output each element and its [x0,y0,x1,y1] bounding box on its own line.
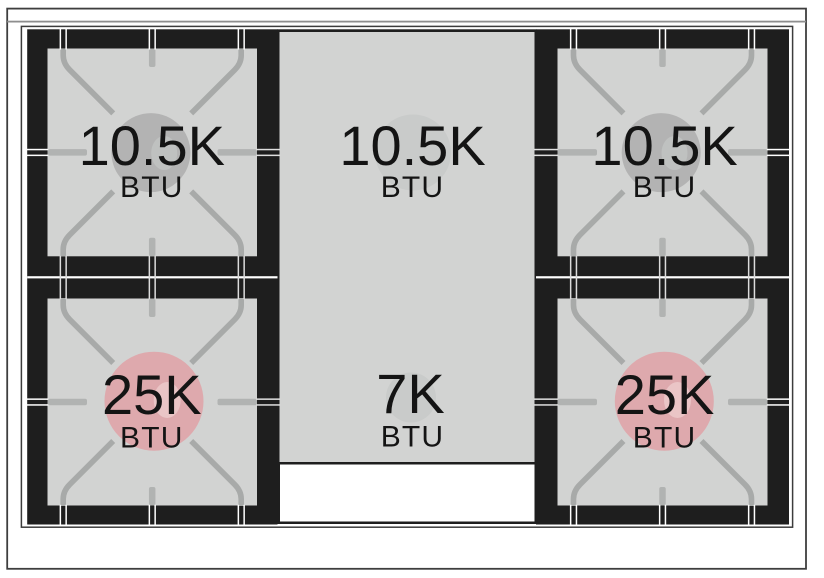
svg-text:10.5K: 10.5K [591,114,737,177]
svg-text:BTU: BTU [633,171,697,204]
svg-text:10.5K: 10.5K [79,114,225,177]
svg-text:BTU: BTU [633,421,697,454]
svg-text:25K: 25K [615,363,715,426]
svg-text:10.5K: 10.5K [339,114,485,177]
svg-text:BTU: BTU [381,420,445,453]
svg-text:BTU: BTU [120,421,184,454]
svg-text:7K: 7K [376,362,445,425]
svg-text:25K: 25K [102,363,202,426]
svg-text:BTU: BTU [381,171,445,204]
svg-text:BTU: BTU [120,171,184,204]
